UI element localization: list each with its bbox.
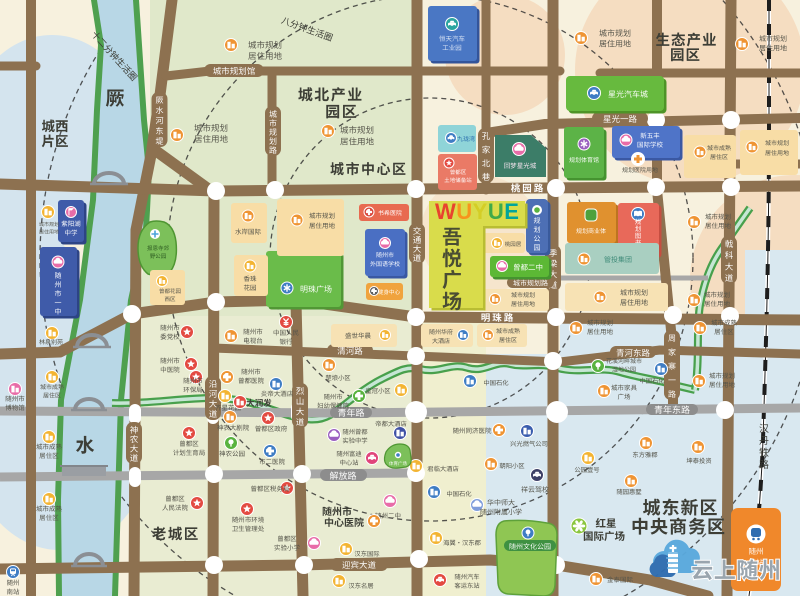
svg-text:WUYUE: WUYUE bbox=[435, 199, 519, 224]
